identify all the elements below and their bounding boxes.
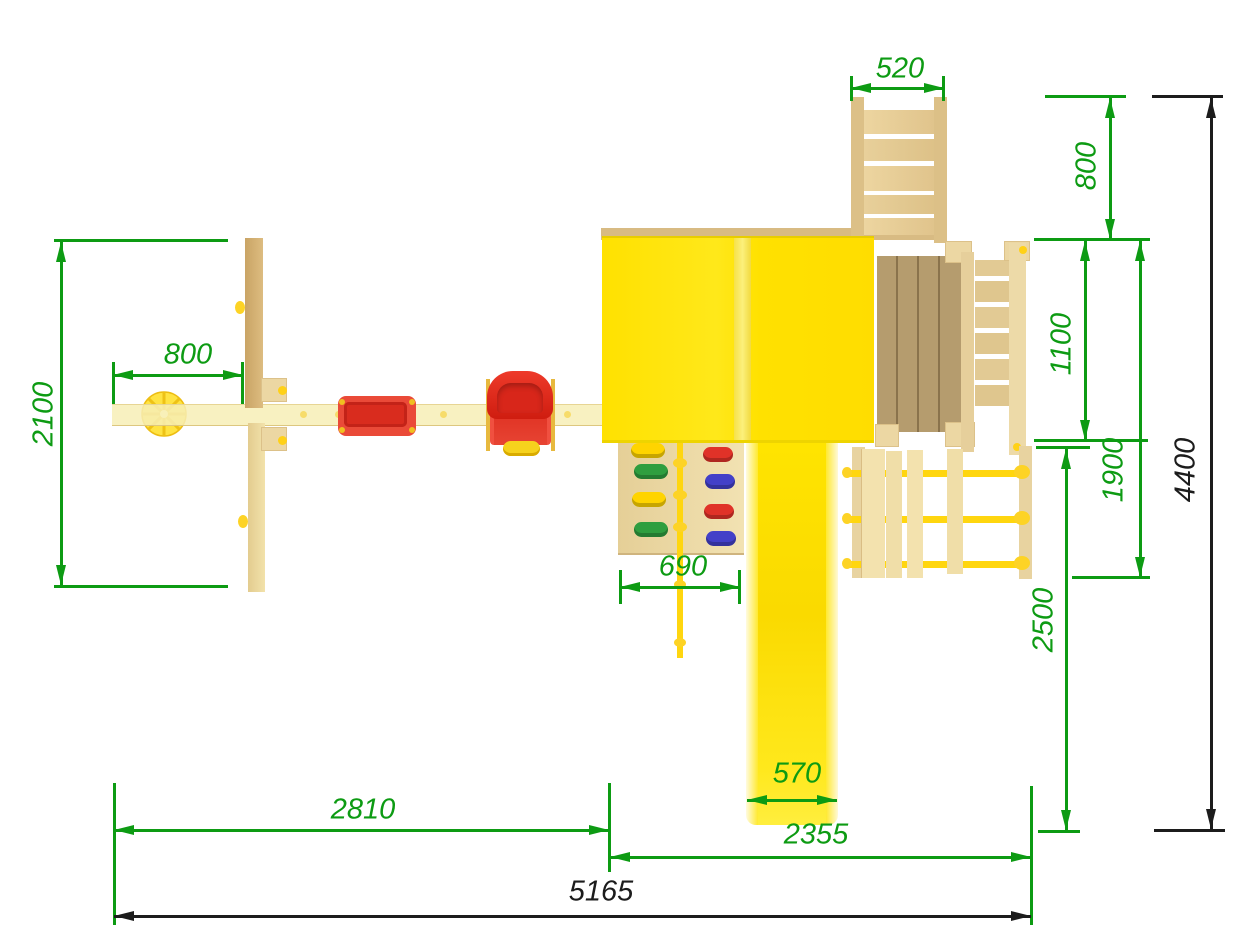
deck-planks [877, 256, 961, 432]
ramp-board [975, 359, 1011, 380]
bridge-slat [886, 451, 902, 578]
climbing-hold-yellow [631, 443, 665, 458]
dim-label-2100: 2100 [30, 382, 59, 447]
deck-plank-gap [938, 256, 940, 432]
rope-knot [1014, 511, 1030, 525]
rope-knot [674, 638, 686, 647]
ladder-rung [857, 166, 941, 191]
rope-knot [1014, 556, 1030, 570]
ladder-rung [857, 139, 941, 161]
rope-knot [673, 522, 687, 532]
ladder-rail-left [851, 97, 864, 243]
bolt [300, 411, 307, 418]
flat-swing-seat [338, 396, 416, 436]
bridge-slat [947, 449, 963, 574]
climbing-hold-red [704, 504, 734, 519]
dim-label-570: 570 [773, 760, 821, 789]
ladder-rung [857, 110, 941, 134]
dim-label-5165: 5165 [569, 878, 634, 907]
baby-swing-seat-inset [497, 383, 543, 413]
climbing-hold-green [634, 464, 668, 479]
climbing-hold-yellow [632, 492, 666, 507]
dim-label-1100: 1100 [1048, 313, 1077, 375]
ladder-rung [857, 195, 941, 214]
ramp-rail [1009, 243, 1026, 455]
bolt [564, 411, 571, 418]
bridge-slat [861, 449, 885, 578]
dim-label-520: 520 [876, 55, 924, 84]
dim-label-800-left: 800 [164, 341, 212, 370]
climbing-hold-red [703, 447, 733, 462]
deck-plank-gap [896, 256, 898, 432]
bolt [440, 411, 447, 418]
rope-knot [673, 458, 687, 468]
ramp-board [975, 307, 1011, 328]
playground-plan-drawing: 520 800 1100 1900 2500 [0, 0, 1239, 931]
baby-swing-seat [486, 371, 555, 457]
access-ladder [851, 97, 947, 243]
tower-roof [602, 236, 874, 443]
ramp-board [975, 333, 1011, 354]
peg [238, 515, 248, 528]
deck-divider-beam [961, 252, 974, 452]
deck-plank-gap [917, 256, 919, 432]
ladder-rung [857, 218, 941, 235]
rope-knot [673, 490, 687, 500]
climbing-hold-blue [706, 531, 736, 546]
dim-label-1900: 1900 [1100, 438, 1129, 503]
chain-link [339, 399, 345, 405]
baby-swing-base [503, 441, 540, 456]
ramp-board [975, 385, 1011, 406]
dim-label-2810: 2810 [331, 796, 396, 825]
dim-label-2500: 2500 [1030, 588, 1059, 653]
chain-link [409, 399, 415, 405]
ramp-board [975, 260, 1011, 276]
ladder-rail-right [934, 97, 947, 243]
bolt [278, 386, 287, 395]
rope-hook [842, 467, 852, 478]
rope-hook [842, 558, 852, 569]
climbing-hold-green [634, 522, 668, 537]
dim-label-2355: 2355 [784, 821, 849, 850]
rope-knot [1014, 465, 1030, 479]
flat-swing-inner [344, 402, 407, 427]
dim-label-800-top: 800 [1073, 142, 1102, 190]
deck-post [875, 424, 899, 447]
dim-label-4400: 4400 [1172, 438, 1201, 503]
slide-rail-left [746, 443, 758, 825]
chain-link [409, 427, 415, 433]
bolt [278, 436, 287, 445]
ramp-board [975, 281, 1011, 302]
slide-rail-right [826, 443, 838, 825]
dim-label-690: 690 [659, 553, 707, 582]
baby-swing-back [487, 371, 553, 419]
bridge-slat [907, 450, 923, 578]
chain-link [339, 427, 345, 433]
climbing-hold-blue [705, 474, 735, 489]
peg [235, 301, 245, 314]
roof-ridge [734, 238, 751, 440]
bolt [1019, 246, 1027, 254]
rope-hook [842, 513, 852, 524]
